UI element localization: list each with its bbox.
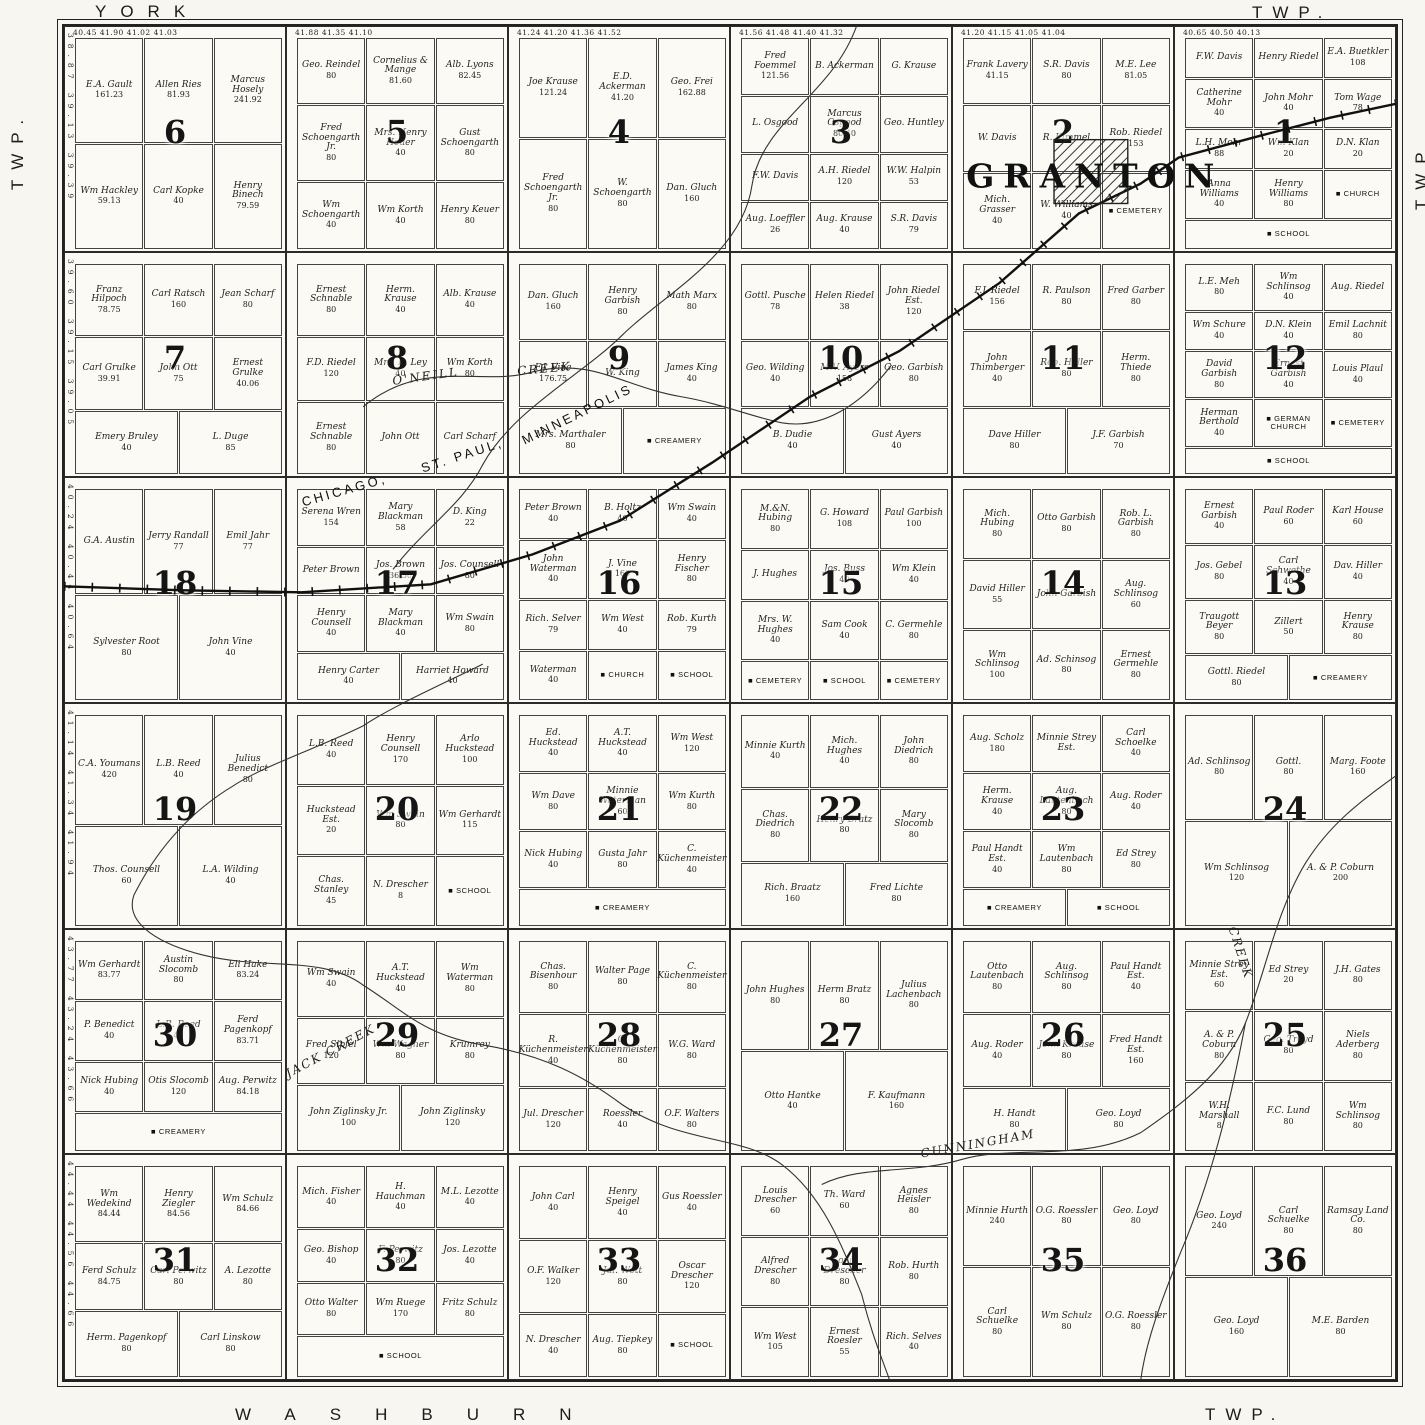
parcel-owner: E.A. Buetkler xyxy=(1327,48,1388,58)
landmark-school: ■ School xyxy=(1067,889,1170,925)
parcel: Wm Schure40 xyxy=(1185,312,1253,350)
parcel-owner: L.A. Wilding xyxy=(202,866,258,876)
section-32: Mich. Fisher40H. Hauchman40M.L. Lezotte4… xyxy=(286,1154,508,1380)
parcel: Fred Schoengarth Jr.80 xyxy=(519,139,587,249)
parcel-acres: 80 xyxy=(909,1273,919,1282)
parcel: Wm Lautenbach80 xyxy=(1032,831,1100,888)
parcel-acres: 40 xyxy=(326,1198,336,1207)
parcel: F.C. Lund80 xyxy=(1254,1082,1322,1152)
parcel-owner: Niels Aderberg xyxy=(1327,1031,1389,1050)
parcel-acres: 80 xyxy=(1353,332,1363,341)
parcel: L.H. Mohr88 xyxy=(1185,129,1253,169)
parcel-owner: Th. Ward xyxy=(824,1191,865,1201)
parcel: Gusta Jahr80 xyxy=(588,831,656,888)
parcel-acres: 160 xyxy=(546,303,561,312)
parcel-owner: Carl Perwitz xyxy=(150,1267,207,1277)
edge-label-york: YORK xyxy=(95,2,199,22)
parcel-owner: Austin Slocomb xyxy=(147,956,209,975)
survey-numbers-left: 38.87 39.13 39.39 xyxy=(65,33,75,247)
parcel-acres: 40 xyxy=(343,677,353,686)
section-19: 41.14 41.34 41.94 42.34C.A. Youmans420L.… xyxy=(64,703,286,929)
parcel-acres: 60 xyxy=(617,808,627,817)
parcel-acres: 80 xyxy=(173,1278,183,1287)
parcel: C. Küchenmeister40 xyxy=(658,831,726,888)
parcel-acres: 40 xyxy=(839,576,849,585)
parcel-owner: Ernest Garbish xyxy=(1188,502,1250,521)
parcel-acres: 40 xyxy=(548,1057,558,1066)
parcel-acres: 40 xyxy=(1214,200,1224,209)
parcel: Mrs. R. Ley40 xyxy=(366,337,434,400)
parcel: W.G. Ward80 xyxy=(658,1014,726,1087)
parcel-owner: Ernest Roesler xyxy=(813,1328,875,1347)
parcel-owner: John Vine xyxy=(209,638,253,648)
parcel: Franz Hilpoch78.75 xyxy=(75,264,143,337)
parcel-owner: John Mohr xyxy=(1264,94,1312,104)
parcel-owner: A.T. Huckstead xyxy=(369,964,431,983)
parcel: Jos. Lezotte40 xyxy=(436,1229,504,1281)
parcel-list: Aug. Scholz180Minnie Strey Est.Carl Scho… xyxy=(963,715,1170,926)
parcel: Cornelius & Mange81.60 xyxy=(366,38,434,104)
parcel-owner: O.G. Roessler xyxy=(1105,1312,1167,1322)
parcel: Wm Schlinsog120 xyxy=(1185,821,1288,926)
parcel: Krumrey80 xyxy=(436,1018,504,1084)
parcel-owner: Carl Schuelke xyxy=(1257,1207,1319,1226)
parcel-owner: R. Paulson xyxy=(1042,287,1090,297)
parcel-owner: Waterman xyxy=(530,666,577,676)
parcel-acres: 40 xyxy=(548,575,558,584)
section-23: Aug. Scholz180Minnie Strey Est.Carl Scho… xyxy=(952,703,1174,929)
parcel-acres: 80 xyxy=(1214,768,1224,777)
parcel-owner: Thos. Counsell xyxy=(93,866,160,876)
parcel: Waterman40 xyxy=(519,651,587,700)
parcel-acres: 77 xyxy=(243,543,253,552)
parcel: J. Hughes xyxy=(741,550,809,600)
parcel-acres: 84.66 xyxy=(236,1205,259,1214)
parcel-acres: 80 xyxy=(909,632,919,641)
parcel-acres: 80 xyxy=(1214,381,1224,390)
section-36: Geo. Loyd240Carl Schuelke80Ramsay Land C… xyxy=(1174,1154,1396,1380)
parcel: Jos. Gebel80 xyxy=(1185,545,1253,599)
parcel-acres: 40 xyxy=(548,515,558,524)
parcel: Henry Binech79.59 xyxy=(214,144,282,249)
parcel-owner: Agnes Heisler xyxy=(883,1187,945,1206)
parcel-acres: 80 xyxy=(465,1052,475,1061)
parcel: Carl Schwethe40 xyxy=(1254,545,1322,599)
parcel: E.D. Ackerman41.20 xyxy=(588,38,656,138)
parcel-owner: Jos. Lezotte xyxy=(443,1246,496,1256)
parcel-acres: 60 xyxy=(770,1207,780,1216)
parcel-list: Minnie Kurth40Mich. Hughes40John Diedric… xyxy=(741,715,948,926)
parcel-acres: 158 xyxy=(837,375,852,384)
parcel-acres: 40 xyxy=(395,149,405,158)
parcel: Geo. Loyd80 xyxy=(1067,1088,1170,1151)
parcel-owner: M.E. Barden xyxy=(1312,1317,1370,1327)
parcel-acres: 80 xyxy=(326,444,336,453)
parcel-owner: Mary Blackman xyxy=(369,609,431,628)
landmark-church: ■ Church xyxy=(1324,170,1392,219)
parcel-owner: Wm Klein xyxy=(892,565,936,575)
section-15: M.&N. Hubing80G. Howard108Paul Garbish10… xyxy=(730,477,952,703)
parcel: Rob. Hurth80 xyxy=(880,1237,948,1307)
parcel-owner: Peter Brown xyxy=(303,566,360,576)
parcel-list: Ernest Garbish40Paul Roder60Karl House60… xyxy=(1185,489,1392,700)
parcel-acres: 78 xyxy=(770,303,780,312)
parcel-owner: Otto Walter xyxy=(305,1299,358,1309)
parcel-owner: F.W. Davis xyxy=(752,172,798,182)
parcel-acres: 80 xyxy=(687,1052,697,1061)
parcel-owner: Rob. Riedel xyxy=(1110,129,1163,139)
parcel-owner: Roessler xyxy=(603,1110,642,1120)
parcel-owner: Walter Page xyxy=(595,967,650,977)
parcel-list: Gottl. Pusche78Helen Riedel38John Riedel… xyxy=(741,264,948,475)
parcel-owner: S.R. Davis xyxy=(1043,61,1089,71)
parcel-list: Peter Brown40B. Holtz40Wm Swain40John Wa… xyxy=(519,489,726,700)
parcel-acres: 80 xyxy=(548,205,558,214)
parcel-acres: 120 xyxy=(546,1278,561,1287)
parcel-owner: H. Hauchman xyxy=(369,1183,431,1202)
parcel: Rob. L. Garbish80 xyxy=(1102,489,1170,559)
parcel-list: Mich. Fisher40H. Hauchman40M.L. Lezotte4… xyxy=(297,1166,504,1377)
parcel-owner: Nick Hubing xyxy=(524,850,582,860)
parcel: Geo. Troyd80 xyxy=(1254,1011,1322,1081)
parcel: Joe Krause121.24 xyxy=(519,38,587,138)
section-10: Gottl. Pusche78Helen Riedel38John Riedel… xyxy=(730,252,952,478)
parcel-list: Wm Swain40A.T. Huckstead40Wm Waterman80F… xyxy=(297,941,504,1152)
parcel-acres: 40 xyxy=(1283,104,1293,113)
parcel-list: F.W. DavisHenry RiedelE.A. Buetkler108Ca… xyxy=(1185,38,1392,249)
parcel-owner: Emery Bruley xyxy=(95,433,158,443)
survey-numbers-top: 41.56 41.48 41.40 41.32 xyxy=(739,28,943,37)
parcel: M.E. Barden80 xyxy=(1289,1277,1392,1377)
parcel-acres: 40 xyxy=(326,629,336,638)
parcel-owner: C. Küchenmeister xyxy=(657,845,726,864)
parcel: E.A. Buetkler108 xyxy=(1324,38,1392,78)
parcel: Agnes Heisler80 xyxy=(880,1166,948,1236)
parcel-acres: 40 xyxy=(548,676,558,685)
parcel-acres: 40 xyxy=(909,576,919,585)
parcel-owner: John Thimberger xyxy=(966,354,1028,373)
survey-numbers-left: 44.44 44.56 44.66 44.75 xyxy=(65,1161,75,1375)
parcel-acres: 120 xyxy=(684,745,699,754)
parcel: Marcus Hosely241.92 xyxy=(214,38,282,143)
parcel-acres: 38 xyxy=(839,303,849,312)
parcel: Herm. Krause40 xyxy=(963,773,1031,830)
parcel: Gottl. Pusche78 xyxy=(741,264,809,340)
parcel-owner: Jul. Wott xyxy=(603,1267,642,1277)
landmark-german-church: ■ German Church xyxy=(1254,399,1322,446)
section-2: 41.20 41.15 41.05 41.04Frank Lavery41.15… xyxy=(952,26,1174,252)
parcel-owner: Alb. Krause xyxy=(443,290,496,300)
parcel-acres: 45 xyxy=(326,897,336,906)
parcel-acres: 40 xyxy=(465,1198,475,1207)
parcel: O. Küchenmeister80 xyxy=(588,1014,656,1087)
parcel-owner: James King xyxy=(666,364,717,374)
parcel-acres: 80 xyxy=(173,976,183,985)
parcel-acres: 200 xyxy=(1333,874,1348,883)
parcel-acres: 40 xyxy=(173,197,183,206)
parcel-acres: 40 xyxy=(687,375,697,384)
parcel-owner: Geo. Garbish xyxy=(884,364,943,374)
parcel-owner: Geo. Loyd xyxy=(1113,1207,1159,1217)
parcel-acres: 80 xyxy=(1061,808,1071,817)
parcel: H. Hauchman40 xyxy=(366,1166,434,1228)
parcel-owner: C.A. Youmans xyxy=(78,760,140,770)
section-17: Serena Wren154Mary Blackman58D. King22Pe… xyxy=(286,477,508,703)
parcel-owner: Wm Schulz xyxy=(1041,1312,1092,1322)
parcel: Wm Gerhardt83.77 xyxy=(75,941,143,1001)
parcel: Geo. Loyd240 xyxy=(1185,1166,1253,1276)
parcel: F. Kaufmann160 xyxy=(845,1051,948,1151)
parcel-owner: Jos. Counsell xyxy=(440,561,499,571)
parcel-owner: Henry Ziegler xyxy=(147,1190,209,1209)
parcel-owner: Carl Schuelke xyxy=(966,1308,1028,1327)
survey-numbers-left: 41.14 41.34 41.94 42.34 xyxy=(65,710,75,924)
parcel-owner: John Waterman xyxy=(522,555,584,574)
parcel: Otto Hantke40 xyxy=(741,1051,844,1151)
parcel-acres: 108 xyxy=(837,520,852,529)
parcel-acres: 80 xyxy=(1131,298,1141,307)
parcel-acres: 120 xyxy=(684,1282,699,1291)
parcel-acres: 153 xyxy=(1128,140,1143,149)
parcel: W. Davis xyxy=(963,105,1031,171)
parcel-acres: 40 xyxy=(992,866,1002,875)
survey-numbers-left: 43.77 43.24 43.66 44.18 xyxy=(65,936,75,1150)
section-31: 44.44 44.56 44.66 44.75Wm Wedekind84.44H… xyxy=(64,1154,286,1380)
parcel: O.G. Roessler80 xyxy=(1102,1267,1170,1377)
parcel-acres: 120 xyxy=(324,370,339,379)
parcel: A.T. Huckstead40 xyxy=(366,941,434,1017)
parcel-acres: 80 xyxy=(465,370,475,379)
parcel: Henry Counsell170 xyxy=(366,715,434,785)
parcel-acres: 58 xyxy=(395,524,405,533)
parcel-acres: 80 xyxy=(687,575,697,584)
parcel-owner: Catherine Mohr xyxy=(1188,89,1250,108)
parcel-acres: 60 xyxy=(1131,601,1141,610)
section-33: John Carl40Henry Speigel40Gus Roessler40… xyxy=(508,1154,730,1380)
landmark-cemetery: ■ Cemetery xyxy=(1324,399,1392,446)
section-18: 40.24 40.44 40.64 40.84G.A. AustinJerry … xyxy=(64,477,286,703)
parcel: Marg. Foote160 xyxy=(1324,715,1392,820)
parcel-owner: J. Hughes xyxy=(753,570,797,580)
parcel: Wm Hackley59.13 xyxy=(75,144,143,249)
parcel-owner: Gottl. Riedel xyxy=(1208,668,1265,678)
parcel: Wm Korth80 xyxy=(436,337,504,400)
parcel-acres: 80 xyxy=(326,1310,336,1319)
parcel-list: C.A. Youmans420L.B. Reed40Julius Benedic… xyxy=(75,715,282,926)
parcel-acres: 80 xyxy=(1214,1052,1224,1061)
parcel-acres: 80 xyxy=(1113,1121,1123,1130)
parcel-owner: Herm. Krause xyxy=(966,787,1028,806)
parcel: J.F. Garbish70 xyxy=(1067,408,1170,474)
landmark-creamery: ■ Creamery xyxy=(623,408,726,474)
parcel: Otto Garbish80 xyxy=(1032,489,1100,559)
parcel: Mrs. Henry Heuer40 xyxy=(366,105,434,181)
parcel-owner: Mary Blackman xyxy=(369,503,431,522)
parcel: F.D. Riedel120 xyxy=(297,337,365,400)
parcel: John Ott xyxy=(366,402,434,475)
parcel-acres: 40 xyxy=(687,515,697,524)
parcel-acres: 80 xyxy=(121,1345,131,1354)
parcel: John Mohr40 xyxy=(1254,79,1322,128)
parcel-owner: John Ziglinsky Jr. xyxy=(310,1108,388,1118)
parcel: Ramsay Land Co.80 xyxy=(1324,1166,1392,1276)
parcel-owner: G.A. Austin xyxy=(84,537,135,547)
parcel-acres: 8 xyxy=(1217,1122,1222,1131)
parcel-owner: O. Küchenmeister xyxy=(588,1036,657,1055)
parcel-list: Minnie Hurth240O.G. Roessler80Geo. Loyd8… xyxy=(963,1166,1170,1377)
parcel: A. & P. Coburn200 xyxy=(1289,821,1392,926)
parcel-owner: Mich. Grasser xyxy=(966,196,1028,215)
parcel-owner: Huckstead Est. xyxy=(300,806,362,825)
parcel-acres: 80.40 xyxy=(833,130,856,139)
parcel: John Ott75 xyxy=(144,337,212,410)
parcel-acres: 40 xyxy=(395,985,405,994)
parcel: Henry Speigel40 xyxy=(588,1166,656,1239)
parcel: Mich. Hughes40 xyxy=(810,715,878,788)
parcel-owner: Allen Ries xyxy=(156,81,202,91)
parcel-acres: 120 xyxy=(546,1121,561,1130)
parcel: Henry Riedel xyxy=(1254,38,1322,78)
parcel-owner: Minnie Kurth xyxy=(745,742,806,752)
section-8: Ernest Schnable80Herm. Krause40Alb. Krau… xyxy=(286,252,508,478)
parcel-owner: Henry Binech xyxy=(217,182,279,201)
parcel-owner: Mrs. Henry Heuer xyxy=(369,129,431,148)
parcel-acres: 26 xyxy=(770,226,780,235)
parcel-owner: Wm Dave xyxy=(531,792,575,802)
parcel-acres: 84.56 xyxy=(167,1210,190,1219)
parcel: Emil Lachnit80 xyxy=(1324,312,1392,350)
parcel-owner: Carl Schoelke xyxy=(1105,729,1167,748)
parcel: Herm Bratz80 xyxy=(810,941,878,1051)
parcel: Aug. Riedel xyxy=(1324,264,1392,311)
parcel-acres: 80 xyxy=(1131,375,1141,384)
parcel-owner: Mary Slocomb xyxy=(883,811,945,830)
parcel: Carl Perwitz80 xyxy=(144,1243,212,1309)
parcel: Minnie Strey Est. xyxy=(1032,715,1100,772)
parcel-acres: 120 xyxy=(171,1088,186,1097)
parcel-acres: 40 xyxy=(839,757,849,766)
parcel-acres: 77 xyxy=(173,543,183,552)
parcel: Rob. Heller80 xyxy=(1032,331,1100,407)
parcel-acres: 80 xyxy=(1061,866,1071,875)
parcel-list: John Carl40Henry Speigel40Gus Roessler40… xyxy=(519,1166,726,1377)
parcel-acres: 59.13 xyxy=(98,197,121,206)
parcel-owner: Marcus Hosely xyxy=(217,76,279,95)
parcel-list: John Hughes80Herm Bratz80Julius Lachenba… xyxy=(741,941,948,1152)
parcel-acres: 80 xyxy=(1061,1052,1071,1061)
parcel: Wm Swain40 xyxy=(297,941,365,1017)
parcel-acres: 40 xyxy=(1131,803,1141,812)
parcel-owner: Anna Williams xyxy=(1188,180,1250,199)
parcel: Herm. Thiede80 xyxy=(1102,331,1170,407)
parcel: Chas. Diedrich80 xyxy=(741,789,809,862)
parcel-acres: 80 xyxy=(1214,633,1224,642)
section-13: Ernest Garbish40Paul Roder60Karl House60… xyxy=(1174,477,1396,703)
parcel: J.H. Gates80 xyxy=(1324,941,1392,1011)
parcel-acres: 40 xyxy=(121,444,131,453)
parcel-acres: 79 xyxy=(909,226,919,235)
parcel-acres: 80 xyxy=(687,983,697,992)
parcel-acres: 156 xyxy=(990,298,1005,307)
parcel-owner: David Garbish xyxy=(1188,360,1250,379)
parcel-owner: F.W. Davis xyxy=(1196,53,1242,63)
parcel-acres: 40 xyxy=(617,515,627,524)
parcel-owner: Wm West xyxy=(754,1333,797,1343)
parcel-acres: 60 xyxy=(839,1202,849,1211)
parcel: Ferd Pagenkopf83.71 xyxy=(214,1001,282,1061)
parcel-acres: 40 xyxy=(548,861,558,870)
parcel-owner: Chas. Bisenhour xyxy=(522,963,584,982)
parcel-list: Otto Lautenbach80Aug. Schlinsog80Paul Ha… xyxy=(963,941,1170,1152)
parcel-list: Ernest Schnable80Herm. Krause40Alb. Krau… xyxy=(297,264,504,475)
parcel-owner: Eli Hake xyxy=(228,961,267,971)
parcel-acres: 80 xyxy=(395,821,405,830)
parcel-owner: Wm Swain xyxy=(446,614,495,624)
parcel: John Krause80 xyxy=(1032,1014,1100,1087)
parcel-acres: 80 xyxy=(770,831,780,840)
parcel-acres: 80 xyxy=(1353,1052,1363,1061)
parcel-acres: 80 xyxy=(617,1057,627,1066)
parcel-acres: 20 xyxy=(326,826,336,835)
survey-numbers-top: 40.45 41.90 41.02 41.03 xyxy=(73,28,277,37)
parcel-owner: Henry Carter xyxy=(318,667,379,677)
parcel-owner: Wm Schlinsog xyxy=(1327,1102,1389,1121)
parcel-owner: Aug. Roder xyxy=(1110,792,1161,802)
parcel: Chas. Bisenhour80 xyxy=(519,941,587,1014)
parcel-owner: J.F. Garbish xyxy=(1092,431,1144,441)
parcel: Rich. Selves40 xyxy=(880,1307,948,1377)
landmark-cemetery: ■ Cemetery xyxy=(1102,173,1170,249)
parcel-acres: 80 xyxy=(1353,1227,1363,1236)
parcel: Wm West40 xyxy=(588,600,656,649)
parcel-owner: Emil Lachnit xyxy=(1329,321,1387,331)
parcel-acres: 80 xyxy=(1061,72,1071,81)
parcel-acres: 80 xyxy=(1131,671,1141,680)
parcel-acres: 80 xyxy=(909,1001,919,1010)
parcel-acres: 79 xyxy=(687,626,697,635)
parcel: Fred Sipfel120 xyxy=(297,1018,365,1084)
parcel: Peter Brown xyxy=(297,547,365,594)
parcel-acres: 40 xyxy=(447,677,457,686)
parcel-acres: 80 xyxy=(909,1207,919,1216)
parcel-owner: Wm Hackley xyxy=(80,187,138,197)
parcel-acres: 170 xyxy=(393,1310,408,1319)
parcel: Herman Berthold40 xyxy=(1185,399,1253,446)
parcel: Fritz Schulz80 xyxy=(436,1283,504,1335)
parcel: N. Drescher40 xyxy=(519,1314,587,1377)
parcel-acres: 40 xyxy=(787,442,797,451)
parcel-acres: 55 xyxy=(839,1348,849,1357)
parcel-owner: Gust Schoengarth xyxy=(439,129,501,148)
parcel: Aug. Roder40 xyxy=(1102,773,1170,830)
parcel-acres: 40 xyxy=(1353,573,1363,582)
parcel: Marcus Osgood80.40 xyxy=(810,96,878,153)
parcel: Traugott Beyer80 xyxy=(1185,600,1253,654)
parcel-owner: Ferd Pagenkopf xyxy=(217,1016,279,1035)
parcel-acres: 40 xyxy=(1283,578,1293,587)
parcel-acres: 80 xyxy=(1061,370,1071,379)
parcel-owner: Ad. Schinsog xyxy=(1037,656,1096,666)
parcel-owner: L.B. Reed xyxy=(156,1021,200,1031)
parcel-acres: 40 xyxy=(1214,429,1224,438)
parcel: Jos. Counsell80 xyxy=(436,547,504,594)
parcel: Minnie Kurth40 xyxy=(741,715,809,788)
parcel: Carl Schuelke80 xyxy=(1254,1166,1322,1276)
parcel-acres: 40 xyxy=(770,375,780,384)
parcel-acres: 80 xyxy=(465,985,475,994)
parcel-acres: 154 xyxy=(324,519,339,528)
parcel: Dav. Hiller40 xyxy=(1324,545,1392,599)
